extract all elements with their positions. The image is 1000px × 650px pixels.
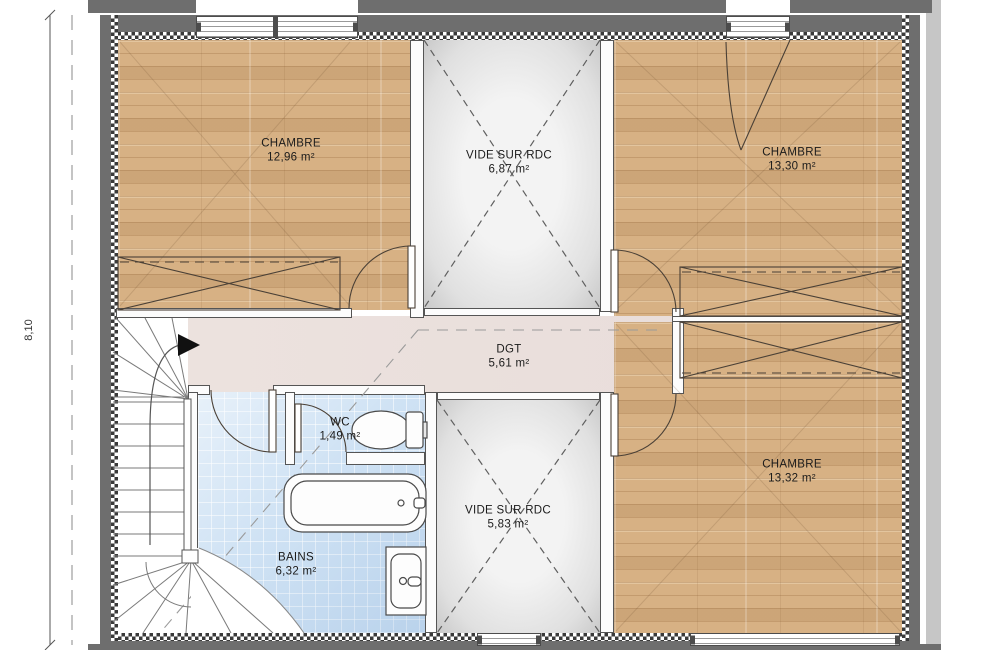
wall-wc-left	[285, 392, 295, 465]
wall-vide-chambre2	[600, 40, 614, 312]
roof-edge-top	[358, 0, 726, 13]
room-name: CHAMBRE	[261, 138, 321, 152]
exterior-wall-right	[909, 15, 920, 650]
roof-edge-top	[88, 0, 196, 13]
room-name: CHAMBRE	[762, 147, 822, 161]
window-vide-bottom	[477, 633, 541, 646]
room-name: CHAMBRE	[762, 459, 822, 473]
railing-vide-top	[424, 308, 600, 316]
wall-wc-bottom	[346, 452, 425, 465]
railing-vide-bottom	[437, 392, 600, 400]
floor-corridor-dgt	[188, 316, 672, 392]
floor-chambre-2	[614, 40, 902, 316]
window-chambre-1	[196, 16, 358, 38]
room-name: VIDE SUR RDC	[466, 150, 552, 164]
wall-stairs-bains	[188, 392, 198, 552]
room-area: 13,32 m²	[762, 472, 822, 486]
floor-plan: CHAMBRE 12,96 m² VIDE SUR RDC 6,87 m² CH…	[0, 0, 1000, 650]
room-label-chambre-2: CHAMBRE 13,30 m²	[762, 147, 822, 174]
wall-chambre2-chambre3	[672, 316, 902, 322]
room-label-chambre-1: CHAMBRE 12,96 m²	[261, 138, 321, 165]
exterior-wall-left	[100, 15, 111, 650]
window-mullion	[273, 17, 278, 37]
roof-edge-top	[790, 0, 932, 13]
room-name: DGT	[488, 344, 529, 358]
insulation-right	[902, 15, 909, 641]
floor-chambre-1	[118, 40, 410, 310]
floor-chambre-3	[614, 322, 902, 633]
insulation-left	[111, 15, 118, 641]
room-area: 6,87 m²	[466, 163, 552, 177]
window-chambre-3	[690, 633, 900, 646]
right-margin-strip	[926, 0, 941, 650]
floor-bains-wc	[198, 392, 425, 633]
room-name: WC	[319, 417, 360, 431]
wall-vide-chambre3	[600, 392, 614, 633]
room-name: VIDE SUR RDC	[465, 505, 551, 519]
room-area: 12,96 m²	[261, 151, 321, 165]
room-label-chambre-3: CHAMBRE 13,32 m²	[762, 459, 822, 486]
room-area: 6,32 m²	[275, 565, 316, 579]
room-area: 1,49 m²	[319, 430, 360, 444]
wall-chambre1-corridor	[116, 308, 352, 318]
room-label-wc: WC 1,49 m²	[319, 417, 360, 444]
room-label-vide-1: VIDE SUR RDC 6,87 m²	[466, 150, 552, 177]
window-chambre-2	[726, 16, 790, 38]
room-area: 13,30 m²	[762, 160, 822, 174]
wall-bains-vide	[425, 392, 437, 633]
room-label-dgt: DGT 5,61 m²	[488, 344, 529, 371]
room-area: 5,61 m²	[488, 357, 529, 371]
room-label-vide-2: VIDE SUR RDC 5,83 m²	[465, 505, 551, 532]
wall-corridor-bains-b	[273, 385, 425, 395]
room-area: 5,83 m²	[465, 518, 551, 532]
dimension-line	[45, 10, 72, 650]
dimension-label: 8,10	[23, 310, 39, 350]
room-name: BAINS	[275, 552, 316, 566]
wall-chambre1-vide	[410, 40, 424, 318]
room-label-bains: BAINS 6,32 m²	[275, 552, 316, 579]
